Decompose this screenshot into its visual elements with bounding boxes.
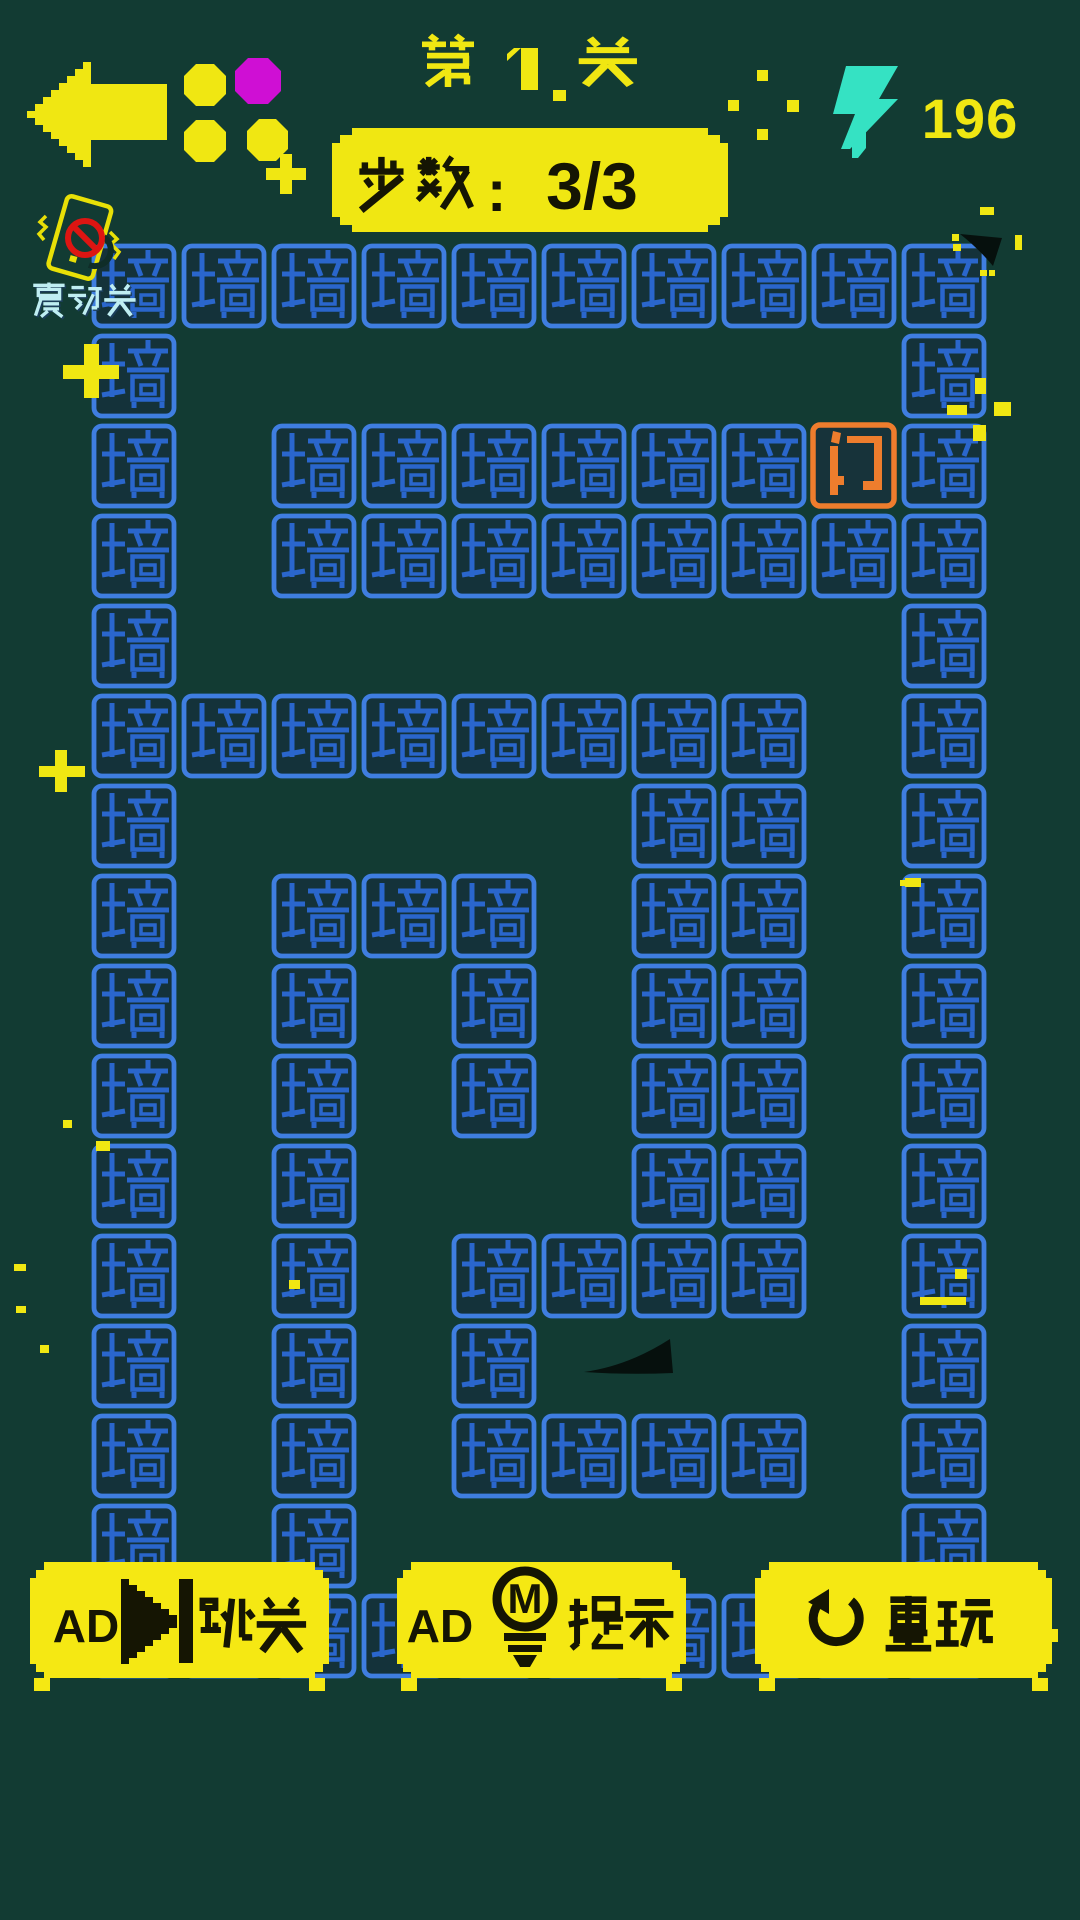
svg-text::: :: [487, 159, 506, 224]
svg-text:AD: AD: [407, 1600, 473, 1652]
svg-text:AD: AD: [53, 1600, 119, 1652]
svg-text:M: M: [508, 1575, 543, 1622]
svg-text:3/3: 3/3: [546, 149, 638, 223]
svg-text:196: 196: [922, 87, 1018, 150]
